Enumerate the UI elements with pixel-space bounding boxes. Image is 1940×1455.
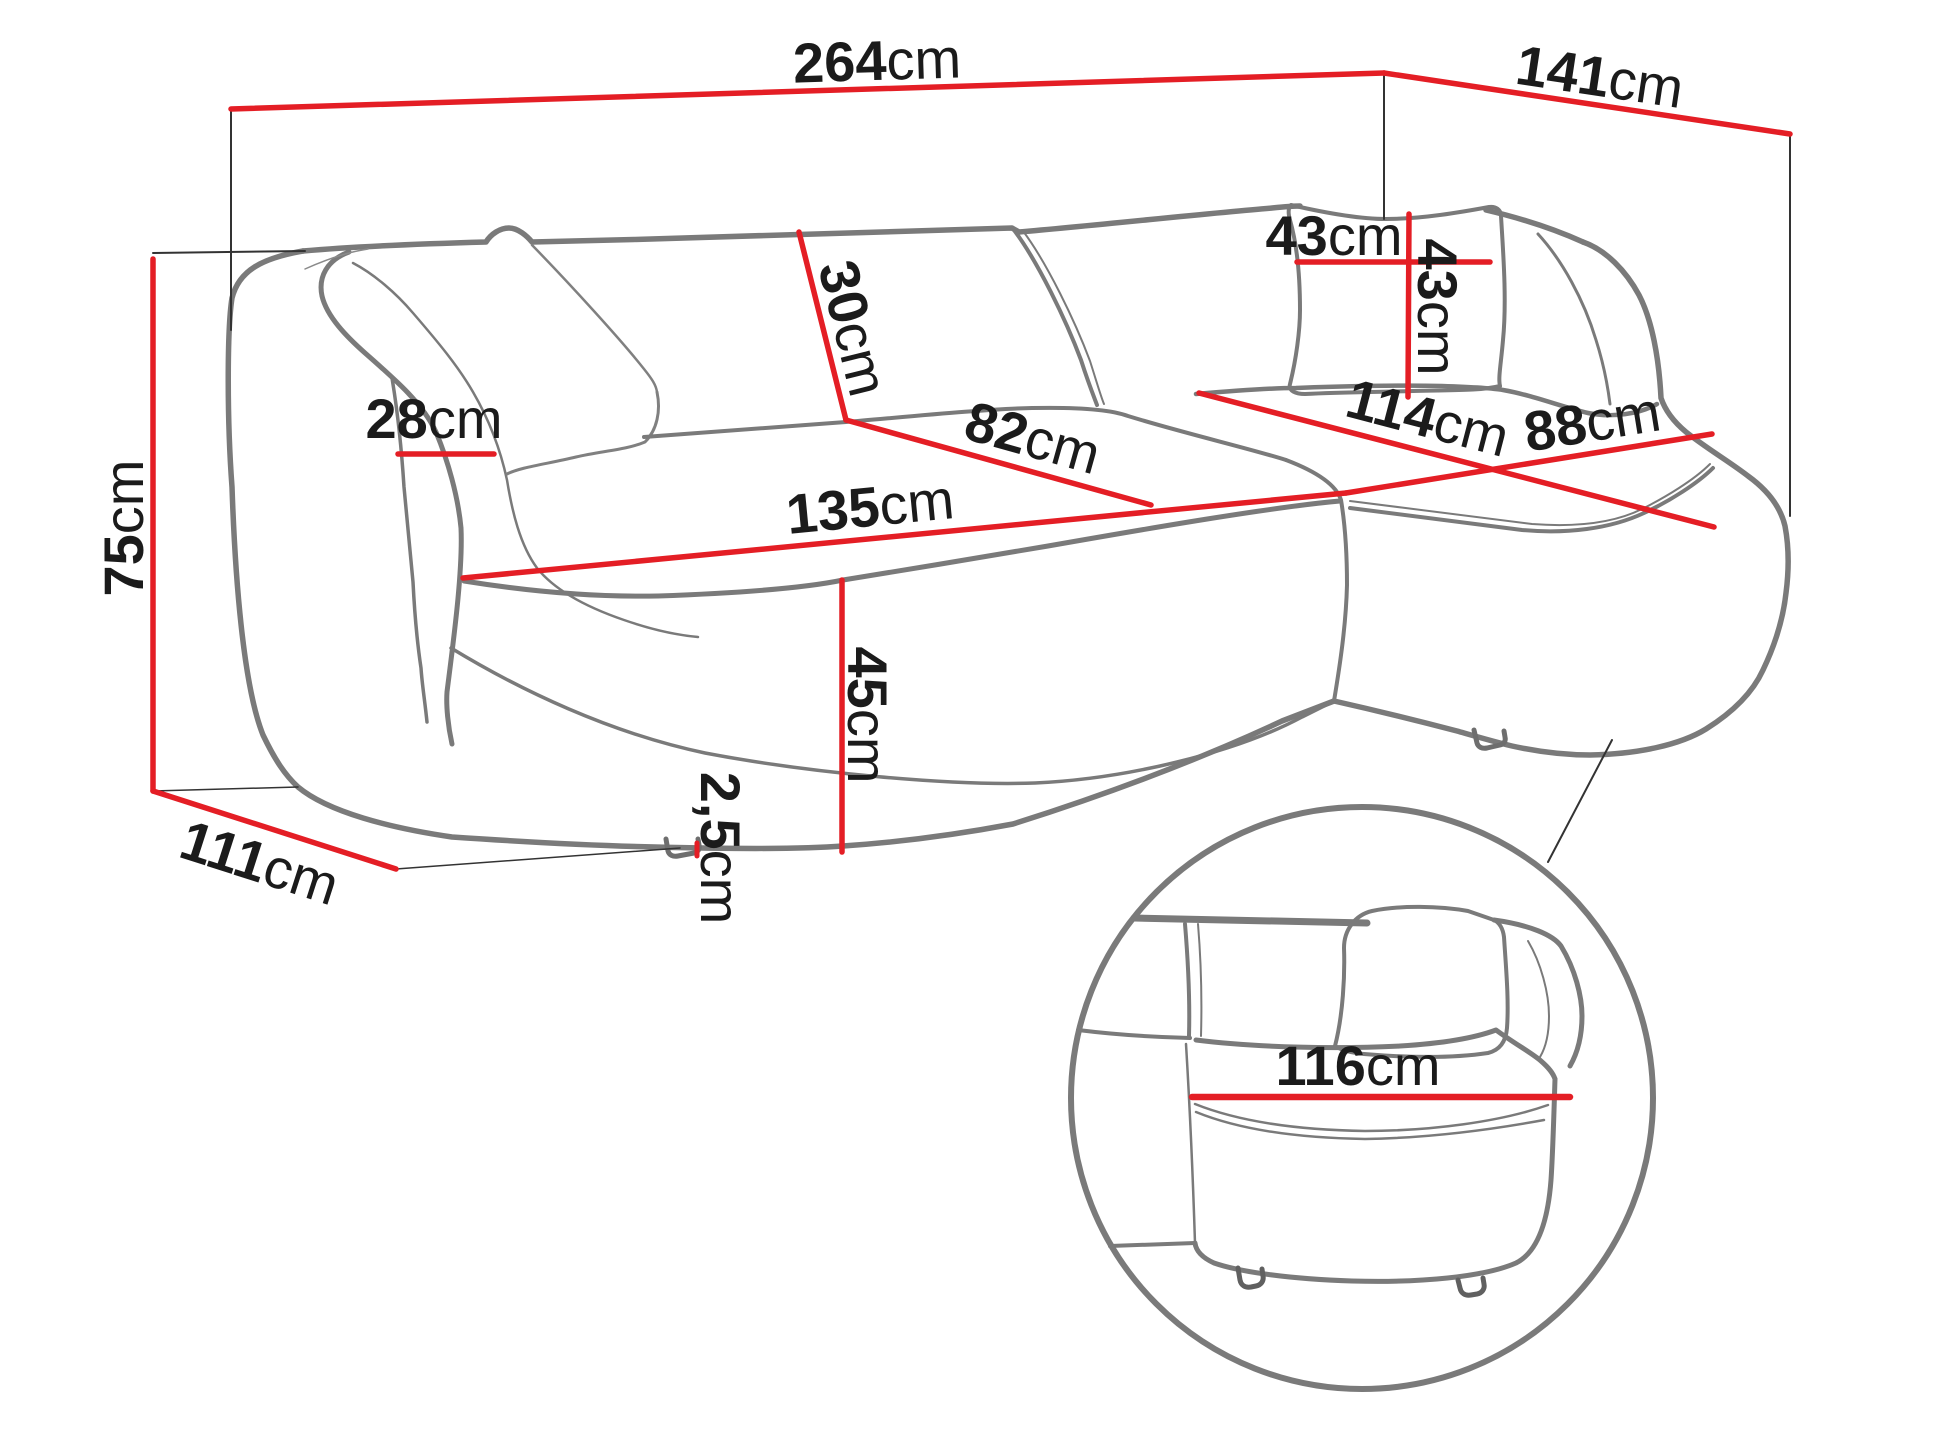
svg-text:28cm: 28cm [366,387,503,450]
svg-text:141cm: 141cm [1512,33,1688,120]
svg-text:88cm: 88cm [1519,379,1664,463]
svg-text:264cm: 264cm [792,26,962,94]
svg-text:43cm: 43cm [1406,239,1469,376]
svg-text:43cm: 43cm [1266,204,1403,267]
svg-text:75cm: 75cm [92,460,155,597]
svg-text:45cm: 45cm [836,647,899,784]
svg-text:2,5cm: 2,5cm [689,772,752,925]
svg-text:116cm: 116cm [1276,1034,1441,1097]
